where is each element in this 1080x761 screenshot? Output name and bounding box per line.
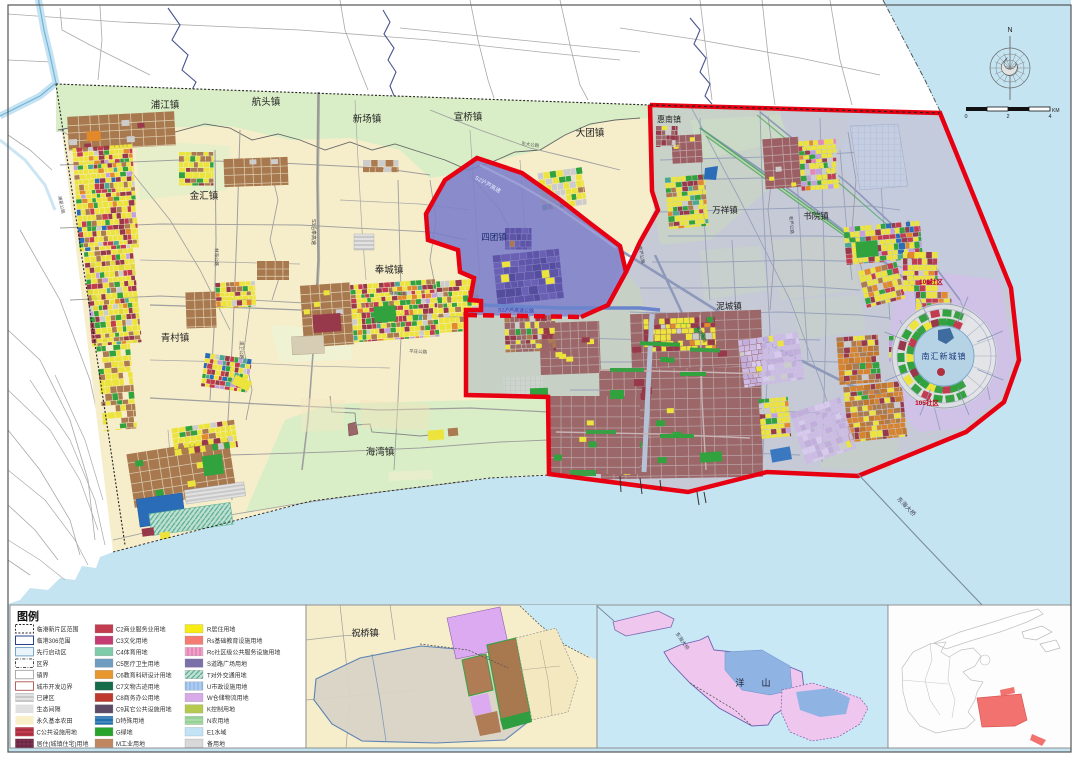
svg-text:S道路广场用地: S道路广场用地 (207, 660, 247, 668)
svg-text:金汇镇: 金汇镇 (190, 190, 219, 202)
svg-text:宣桥镇: 宣桥镇 (454, 111, 483, 123)
svg-text:4: 4 (1048, 114, 1051, 120)
svg-text:E1水域: E1水域 (207, 729, 226, 737)
svg-text:南汇新城镇: 南汇新城镇 (922, 351, 967, 361)
svg-text:林海公路: 林海公路 (213, 248, 220, 266)
svg-text:浦江镇: 浦江镇 (151, 99, 180, 111)
svg-text:海湾镇: 海湾镇 (366, 446, 395, 458)
svg-text:S3沿奉高速: S3沿奉高速 (310, 219, 317, 245)
svg-text:区界: 区界 (37, 661, 49, 668)
svg-text:K控制用地: K控制用地 (207, 706, 235, 714)
svg-text:KM: KM (1052, 108, 1060, 114)
svg-text:C9其它公共设施用地: C9其它公共设施用地 (116, 706, 172, 714)
svg-text:山: 山 (761, 678, 770, 688)
svg-text:D特殊用地: D特殊用地 (116, 717, 144, 725)
svg-text:Rs基础教育设施用地: Rs基础教育设施用地 (207, 637, 262, 645)
svg-text:C4体育用地: C4体育用地 (116, 648, 148, 656)
svg-text:临港新片区范围: 临港新片区范围 (37, 626, 79, 634)
svg-text:先行启动区: 先行启动区 (37, 648, 67, 656)
svg-text:N农用地: N农用地 (207, 717, 229, 725)
svg-text:临港306范围: 临港306范围 (37, 637, 71, 645)
svg-text:浦卫公路: 浦卫公路 (238, 341, 245, 359)
svg-text:M工业用地: M工业用地 (116, 740, 145, 748)
svg-text:R居住用地: R居住用地 (207, 626, 235, 634)
svg-text:S2沪芦高速公路: S2沪芦高速公路 (498, 306, 534, 314)
svg-text:图例: 图例 (17, 609, 39, 623)
svg-text:C8商务办公用地: C8商务办公用地 (116, 694, 160, 702)
svg-text:U市政设施用地: U市政设施用地 (207, 683, 247, 691)
svg-text:N: N (1007, 27, 1012, 34)
svg-text:祝桥镇: 祝桥镇 (351, 627, 378, 638)
svg-text:C7文物古迹用地: C7文物古迹用地 (116, 683, 160, 691)
svg-text:Rc社区级公共服务设施用地: Rc社区级公共服务设施用地 (207, 648, 280, 656)
svg-text:万祥镇: 万祥镇 (712, 205, 738, 215)
svg-text:大团镇: 大团镇 (576, 127, 605, 139)
svg-text:C2商业服务业用地: C2商业服务业用地 (116, 626, 166, 634)
svg-text:青村镇: 青村镇 (161, 332, 190, 344)
svg-text:奉城镇: 奉城镇 (375, 264, 404, 276)
svg-text:四团镇: 四团镇 (481, 232, 507, 242)
svg-text:航头镇: 航头镇 (252, 96, 281, 108)
svg-text:永久基本农田: 永久基本农田 (37, 717, 73, 725)
svg-text:居住(城镇住宅)用地: 居住(城镇住宅)用地 (37, 740, 89, 748)
svg-text:2: 2 (1006, 114, 1009, 120)
svg-text:C6教育科研设计用地: C6教育科研设计用地 (116, 671, 172, 679)
svg-text:0: 0 (964, 114, 967, 120)
svg-text:106社区: 106社区 (919, 277, 943, 286)
svg-text:C公共设施用地: C公共设施用地 (37, 729, 77, 737)
svg-text:新场镇: 新场镇 (353, 113, 382, 125)
svg-text:备用地: 备用地 (207, 740, 225, 748)
svg-text:C5医疗卫生用地: C5医疗卫生用地 (116, 660, 160, 668)
svg-text:惠南镇: 惠南镇 (657, 114, 681, 124)
svg-text:105社区: 105社区 (915, 398, 939, 407)
svg-text:城市开发边界: 城市开发边界 (37, 683, 73, 691)
svg-text:T对外交通用地: T对外交通用地 (207, 671, 247, 679)
svg-text:洋: 洋 (735, 677, 744, 688)
svg-text:镇界: 镇界 (37, 671, 49, 679)
svg-text:W仓储物流用地: W仓储物流用地 (207, 694, 249, 702)
svg-text:泥城镇: 泥城镇 (716, 301, 742, 311)
svg-text:C3文化用地: C3文化用地 (116, 637, 148, 645)
svg-text:书院镇: 书院镇 (803, 211, 829, 221)
svg-text:生态间隔: 生态间隔 (37, 706, 61, 714)
svg-text:已建区: 已建区 (37, 694, 55, 702)
svg-text:G绿地: G绿地 (116, 729, 133, 737)
